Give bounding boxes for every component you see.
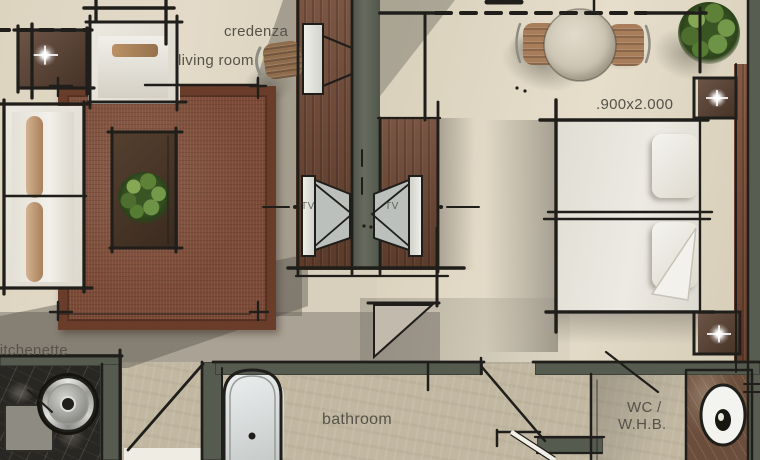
credenza-bracket — [257, 48, 261, 74]
stool-right-bracket — [646, 26, 650, 62]
wc-label-line2: W.H.B. — [618, 416, 666, 433]
tv-left-outline — [302, 176, 315, 256]
wc-door-swing — [606, 352, 658, 392]
side-table-outline — [14, 26, 94, 94]
living-room-label: living room — [178, 52, 254, 69]
armchair-outline — [86, 16, 186, 110]
sketch-overlay — [0, 0, 760, 460]
tv-left-label: TV — [301, 201, 315, 212]
credenza-label: credenza — [224, 23, 288, 40]
round-table-outline — [544, 9, 616, 81]
stool-left-bracket — [517, 24, 521, 62]
tv-right-label: TV — [385, 201, 399, 212]
bracket-lines — [257, 24, 650, 74]
wc-label-line1: WC / — [618, 399, 666, 416]
tv-right-outline — [409, 176, 422, 256]
wall-lines — [0, 0, 760, 460]
tv-wall-panel-outline — [303, 24, 323, 94]
wc-label: WC / W.H.B. — [618, 399, 666, 433]
kitchenette-label: kitchenette — [0, 342, 68, 359]
kitchen-door-swing — [128, 364, 203, 450]
floor-plan: credenza living room .900x2.000 TV TV ki… — [0, 0, 760, 460]
bathroom-door-swing — [481, 358, 545, 441]
sink-outline — [41, 377, 95, 431]
bathroom-label: bathroom — [322, 411, 392, 429]
coffee-table-outline — [108, 128, 182, 252]
bedroom-door-leaf — [374, 305, 432, 357]
bed-dimensions-label: .900x2.000 — [596, 96, 673, 113]
bathtub-outline — [224, 370, 281, 460]
bed-sheet-fold — [652, 228, 696, 300]
